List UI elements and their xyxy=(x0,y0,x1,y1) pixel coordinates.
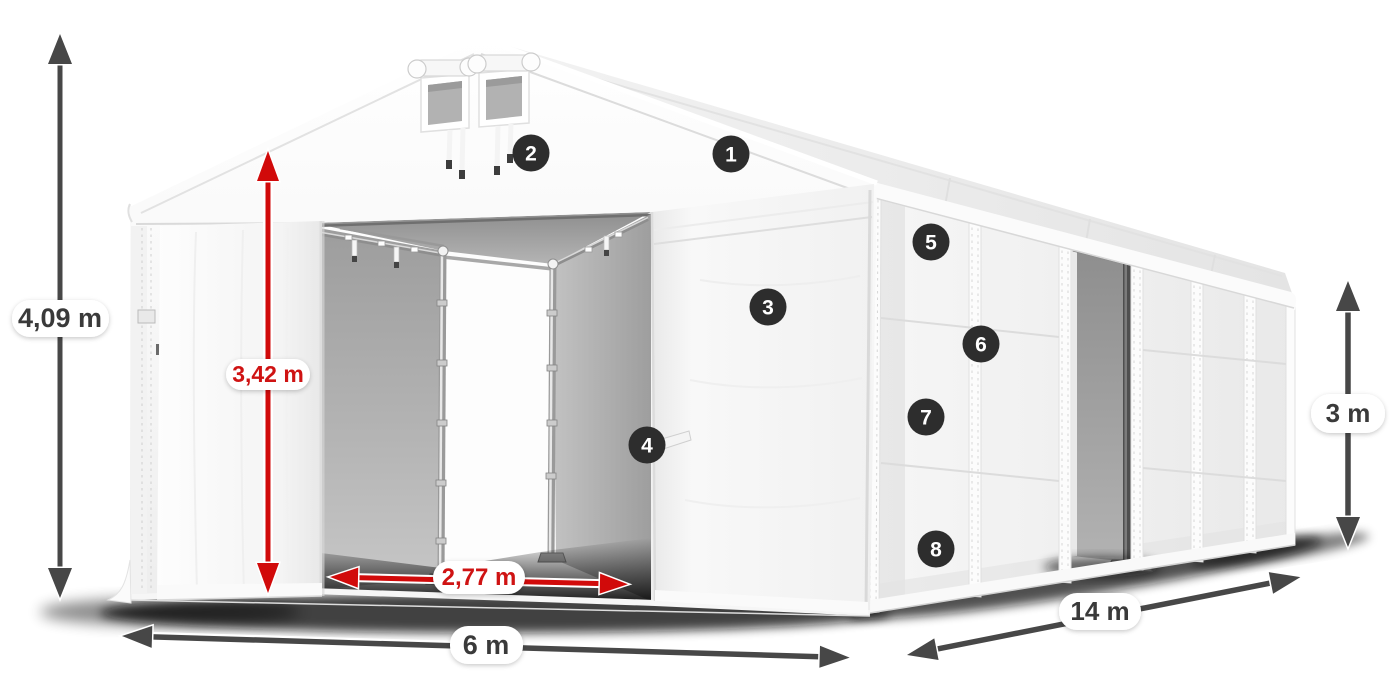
badge-7: 7 xyxy=(908,399,945,436)
svg-text:7: 7 xyxy=(920,407,932,430)
dim-label-side-height: 3 m xyxy=(1311,394,1385,433)
svg-text:6 m: 6 m xyxy=(463,630,510,660)
svg-text:8: 8 xyxy=(930,539,942,562)
badge-2: 2 xyxy=(513,135,550,172)
gable-vent-right xyxy=(468,53,540,127)
tent-interior xyxy=(313,212,651,601)
badge-3: 3 xyxy=(750,289,787,326)
dim-label-front-width: 6 m xyxy=(450,626,523,664)
dim-label-side-length: 14 m xyxy=(1059,593,1141,630)
badge-1: 1 xyxy=(713,136,750,173)
svg-text:4: 4 xyxy=(641,435,653,458)
svg-text:14 m: 14 m xyxy=(1070,596,1129,626)
badge-5: 5 xyxy=(913,224,950,261)
svg-text:5: 5 xyxy=(925,232,937,255)
tent-diagram-canvas: 1 2 3 4 5 6 7 8 xyxy=(0,0,1400,700)
svg-text:1: 1 xyxy=(725,144,737,167)
badge-6: 6 xyxy=(963,326,1000,363)
svg-text:3 m: 3 m xyxy=(1326,398,1371,428)
dim-label-total-height: 4,09 m xyxy=(12,300,109,337)
badge-8: 8 xyxy=(918,531,955,568)
svg-text:4,09 m: 4,09 m xyxy=(18,303,102,333)
door-panel-left xyxy=(157,221,322,600)
svg-text:3,42 m: 3,42 m xyxy=(232,361,304,387)
svg-text:6: 6 xyxy=(975,334,987,357)
svg-text:3: 3 xyxy=(762,297,774,320)
badge-4: 4 xyxy=(629,427,666,464)
svg-text:2,77 m: 2,77 m xyxy=(442,564,517,591)
dim-label-entrance-height: 3,42 m xyxy=(226,359,310,390)
dim-label-entrance-width: 2,77 m xyxy=(433,561,525,594)
svg-text:2: 2 xyxy=(525,143,537,166)
door-panel-right xyxy=(645,184,874,614)
tent-illustration: 1 2 3 4 5 6 7 8 xyxy=(0,0,1400,700)
